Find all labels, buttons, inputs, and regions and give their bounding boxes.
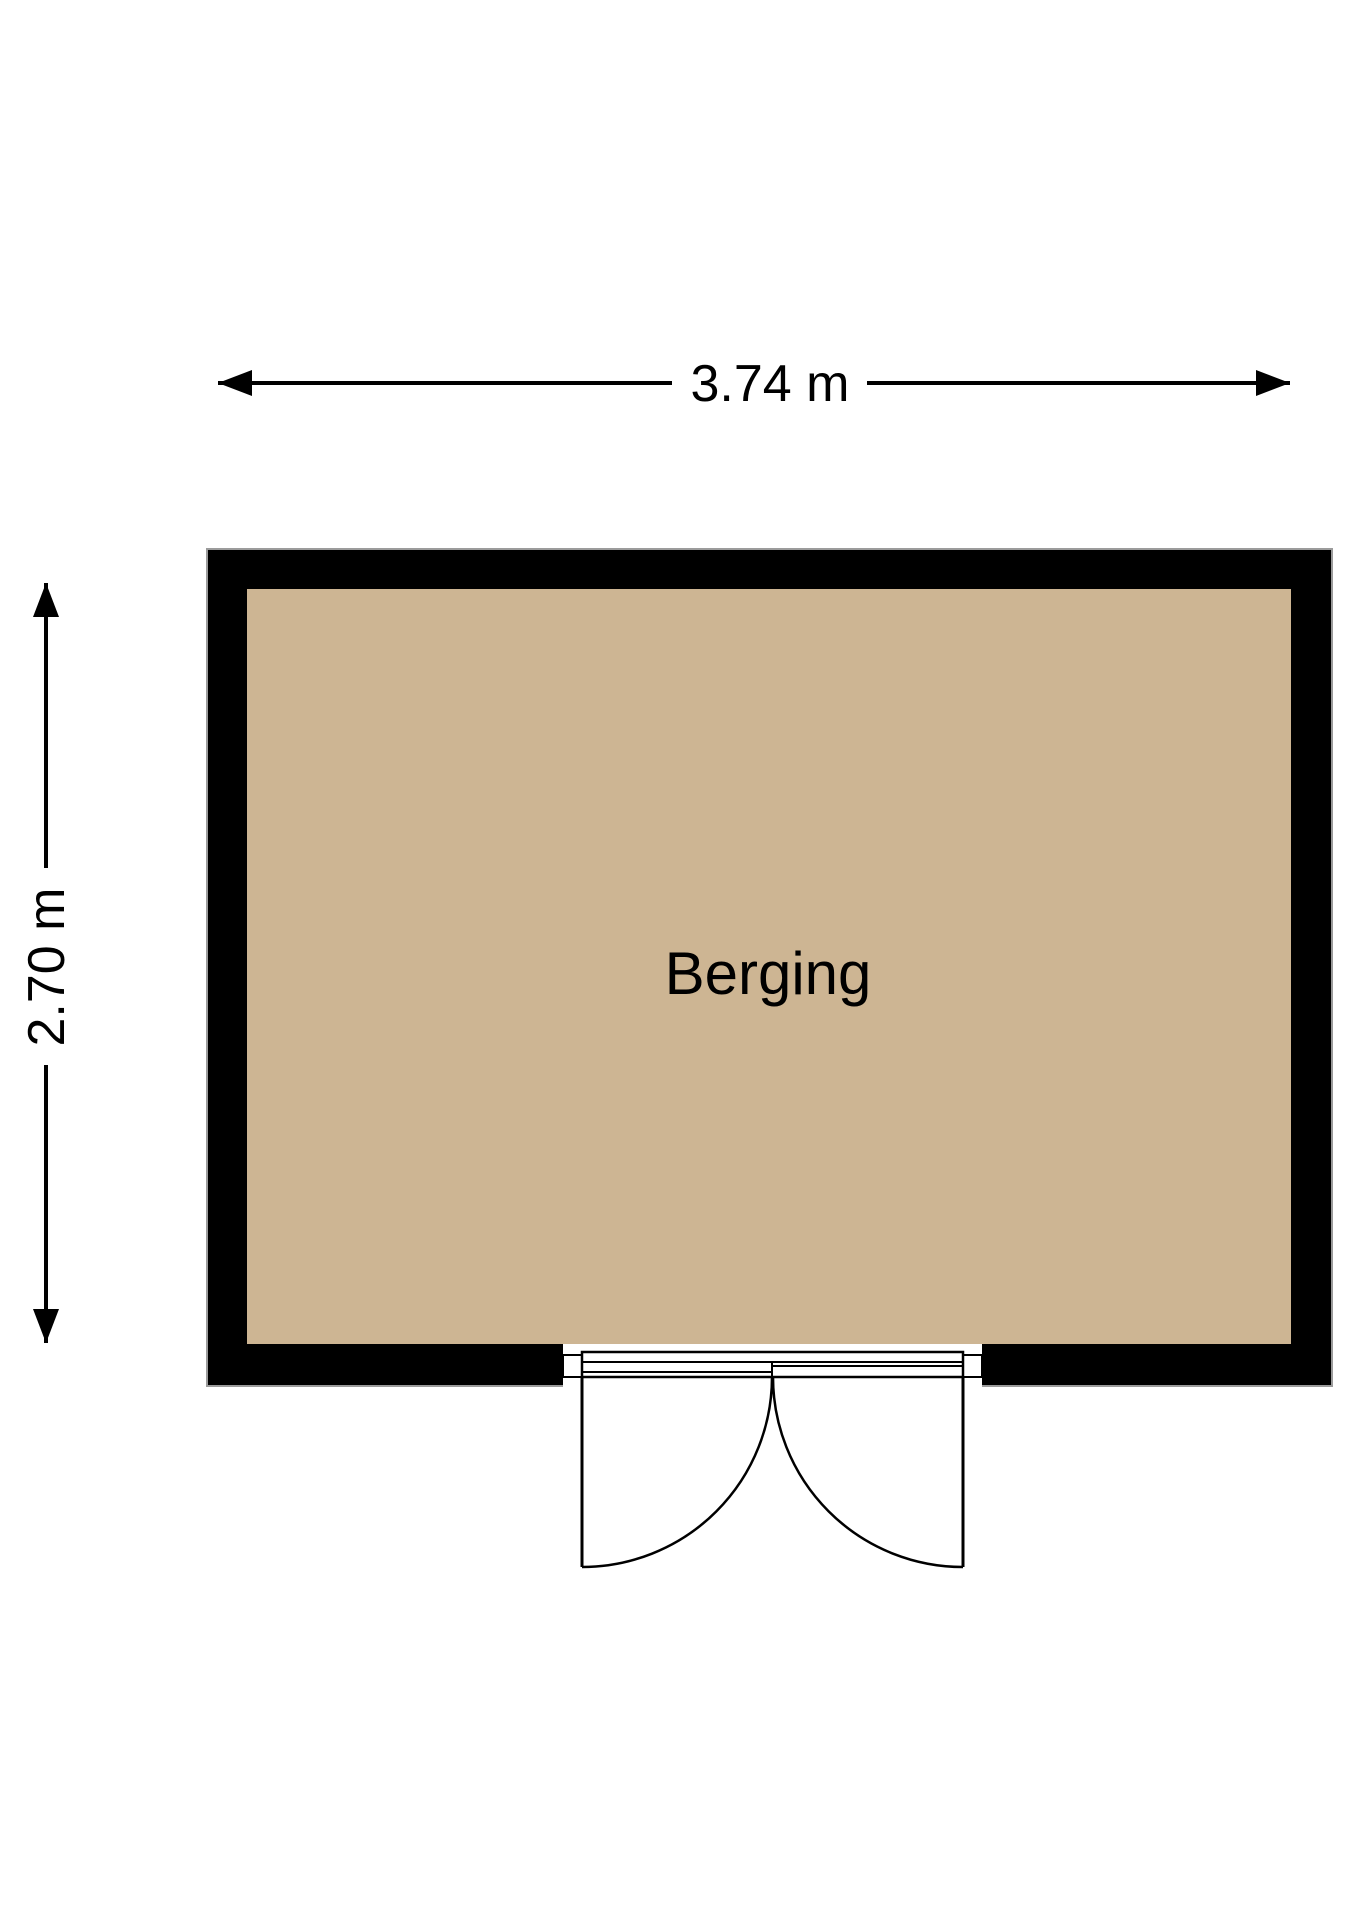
- floorplan-svg: 3.74 m 2.70 m Berging: [0, 0, 1358, 1920]
- height-dimension-label: 2.70 m: [18, 888, 76, 1047]
- floorplan-canvas: 3.74 m 2.70 m Berging: [0, 0, 1358, 1920]
- arrow-down-icon: [33, 1309, 59, 1343]
- width-dimension: 3.74 m: [218, 355, 1290, 413]
- height-dimension: 2.70 m: [18, 583, 76, 1343]
- width-dimension-label: 3.74 m: [691, 355, 850, 413]
- door-right-swing-arc: [773, 1377, 963, 1567]
- door-jamb-left: [563, 1355, 582, 1377]
- arrow-up-icon: [33, 583, 59, 617]
- door-left-swing-arc: [582, 1377, 772, 1567]
- room: Berging: [207, 549, 1332, 1386]
- room-label: Berging: [665, 940, 872, 1007]
- double-door-symbol: [563, 1344, 982, 1567]
- arrow-right-icon: [1256, 370, 1290, 396]
- arrow-left-icon: [218, 370, 252, 396]
- door-jamb-right: [963, 1355, 982, 1377]
